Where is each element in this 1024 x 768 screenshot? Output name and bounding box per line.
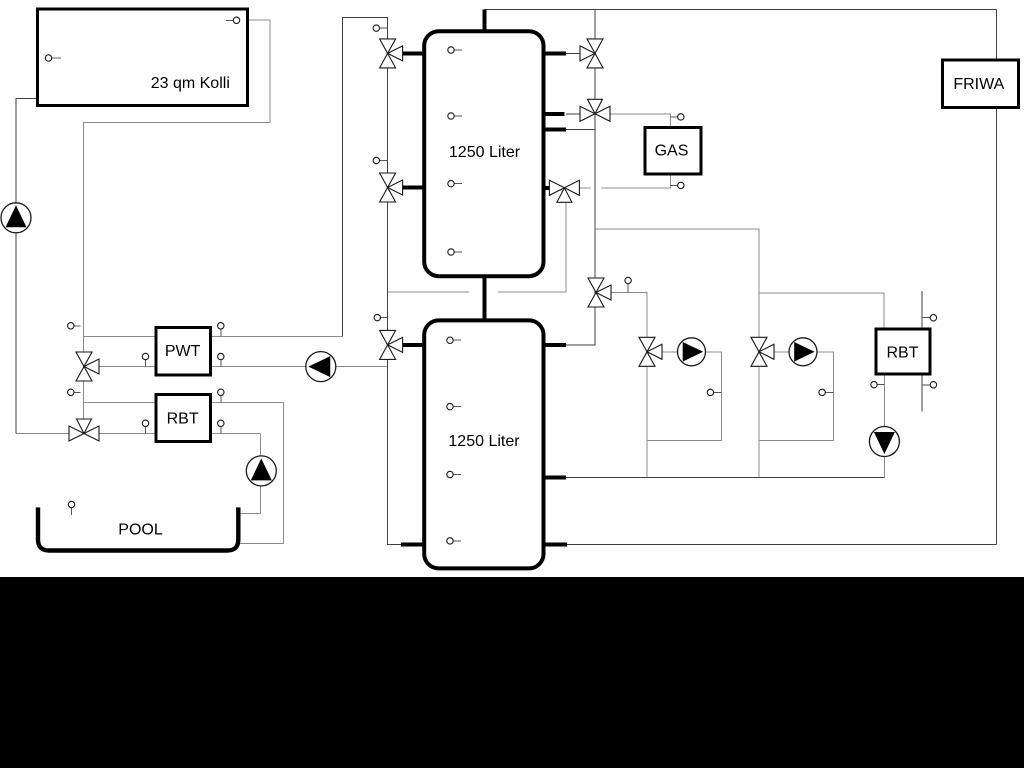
svg-text:POOL: POOL	[118, 522, 163, 539]
svg-text:GAS: GAS	[655, 143, 689, 160]
svg-text:23 qm Kolli: 23 qm Kolli	[151, 75, 230, 92]
svg-text:FRIWA: FRIWA	[953, 76, 1004, 93]
svg-text:1250 Liter: 1250 Liter	[448, 433, 520, 450]
svg-text:PWT: PWT	[165, 343, 201, 360]
svg-text:RBT: RBT	[167, 411, 199, 428]
svg-text:RBT: RBT	[887, 345, 919, 362]
svg-text:1250 Liter: 1250 Liter	[449, 144, 521, 161]
